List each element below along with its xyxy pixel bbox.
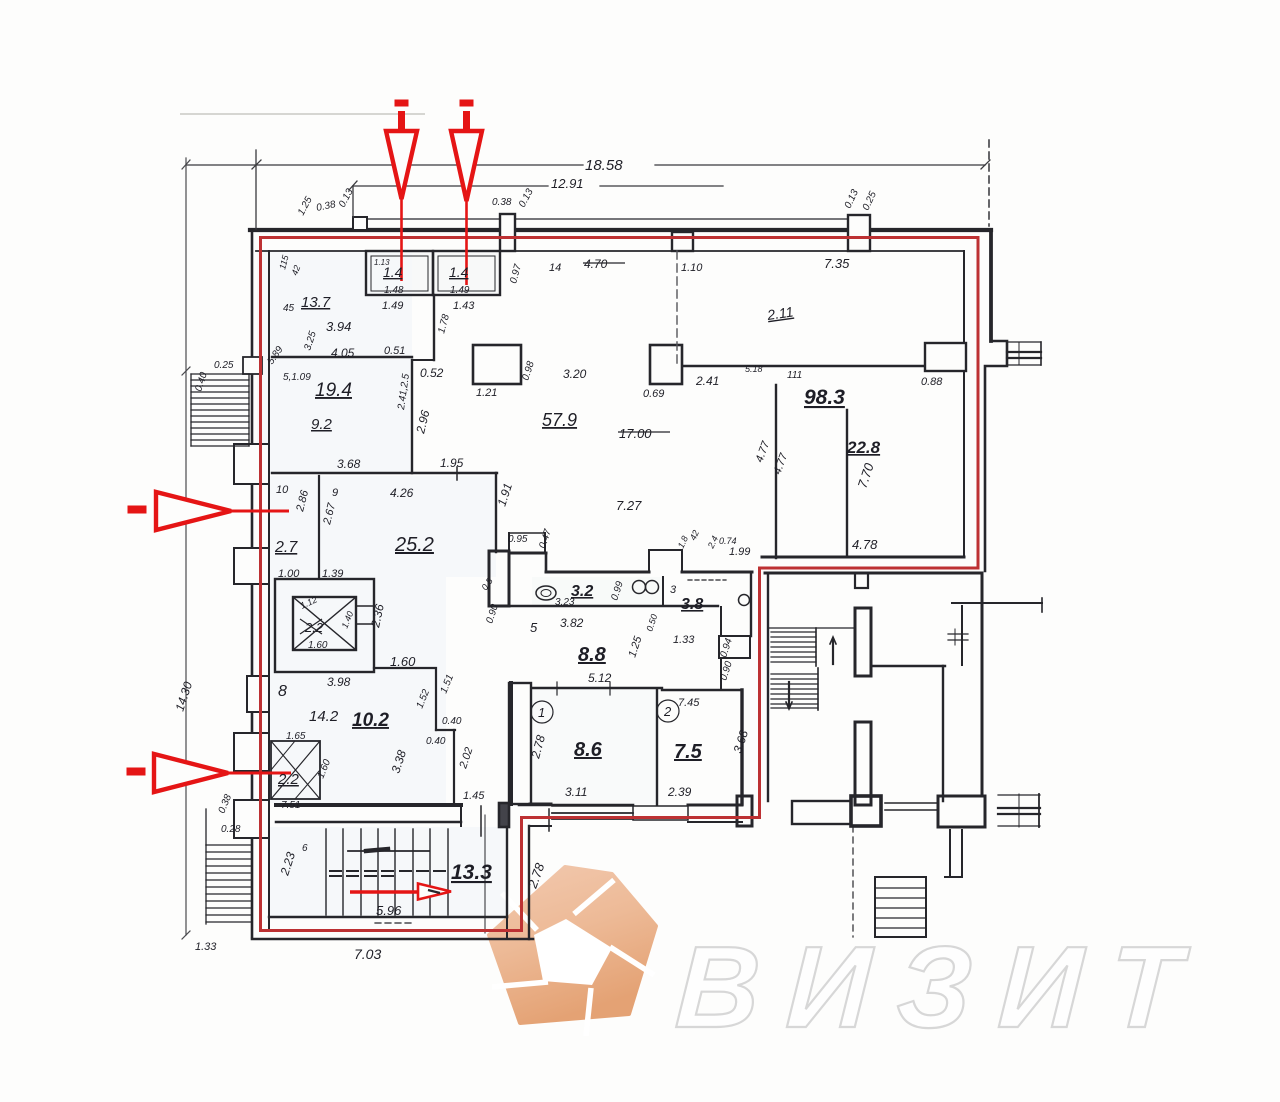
- svg-text:1.39: 1.39: [322, 568, 343, 580]
- svg-text:8.8: 8.8: [578, 644, 607, 666]
- svg-text:14.2: 14.2: [309, 708, 339, 725]
- svg-text:1.95: 1.95: [440, 456, 464, 470]
- svg-text:22.8: 22.8: [846, 438, 881, 457]
- svg-text:0.40: 0.40: [426, 736, 446, 747]
- svg-text:3.11: 3.11: [565, 785, 587, 799]
- svg-text:0.40: 0.40: [442, 716, 462, 727]
- svg-text:2.2: 2.2: [277, 771, 300, 788]
- svg-text:ВИЗИТ: ВИЗИТ: [673, 922, 1211, 1052]
- svg-text:1.10: 1.10: [681, 262, 703, 274]
- svg-text:1.49: 1.49: [450, 285, 470, 296]
- svg-text:2: 2: [663, 704, 672, 719]
- svg-text:1.60: 1.60: [308, 640, 328, 651]
- svg-text:3.82: 3.82: [560, 616, 584, 630]
- svg-text:0.95: 0.95: [508, 534, 528, 545]
- svg-text:1.65: 1.65: [286, 731, 306, 742]
- svg-text:10: 10: [276, 484, 289, 496]
- svg-text:1.48: 1.48: [384, 285, 404, 296]
- svg-text:1.45: 1.45: [463, 790, 485, 802]
- svg-text:5.18: 5.18: [745, 364, 763, 374]
- svg-text:0.74: 0.74: [719, 536, 737, 546]
- svg-text:5.12: 5.12: [588, 671, 612, 685]
- svg-text:2.7: 2.7: [274, 539, 298, 556]
- svg-text:18.58: 18.58: [585, 157, 623, 174]
- svg-text:1.21: 1.21: [476, 387, 497, 399]
- svg-text:7.45: 7.45: [678, 697, 700, 709]
- svg-text:5,1.09: 5,1.09: [283, 372, 311, 383]
- svg-text:4.78: 4.78: [852, 537, 878, 552]
- svg-text:8.6: 8.6: [574, 739, 603, 761]
- svg-text:25.2: 25.2: [394, 534, 434, 556]
- svg-text:9: 9: [332, 487, 338, 499]
- svg-text:0.25: 0.25: [214, 360, 234, 371]
- svg-text:1: 1: [538, 705, 545, 720]
- svg-text:1.99: 1.99: [729, 546, 750, 558]
- svg-text:0.38: 0.38: [492, 197, 512, 208]
- svg-text:5.96: 5.96: [376, 903, 402, 918]
- svg-text:7.35: 7.35: [824, 256, 850, 271]
- svg-text:0.52: 0.52: [420, 366, 444, 380]
- svg-text:8: 8: [278, 683, 287, 700]
- svg-text:3.20: 3.20: [563, 367, 587, 381]
- svg-text:1.49: 1.49: [382, 300, 403, 312]
- svg-text:17.00: 17.00: [619, 426, 652, 441]
- svg-text:0.28: 0.28: [221, 824, 241, 835]
- svg-text:1.33: 1.33: [673, 634, 695, 646]
- svg-text:45: 45: [283, 303, 295, 314]
- svg-text:7.03: 7.03: [354, 946, 381, 962]
- svg-text:3.8: 3.8: [681, 596, 703, 613]
- svg-text:13.3: 13.3: [451, 861, 492, 884]
- svg-text:0.51: 0.51: [384, 345, 405, 357]
- svg-text:3.23: 3.23: [555, 597, 575, 608]
- svg-text:3.98: 3.98: [327, 675, 351, 689]
- svg-text:4.26: 4.26: [390, 486, 414, 500]
- svg-text:2.41: 2.41: [695, 374, 719, 388]
- svg-text:14: 14: [549, 262, 561, 274]
- svg-text:19.4: 19.4: [315, 380, 352, 401]
- svg-text:1.13: 1.13: [374, 258, 390, 267]
- svg-text:1.00: 1.00: [278, 568, 300, 580]
- svg-text:1.33: 1.33: [195, 941, 217, 953]
- svg-text:1.60: 1.60: [390, 654, 416, 669]
- svg-text:0.69: 0.69: [643, 388, 664, 400]
- svg-text:5: 5: [530, 620, 538, 635]
- svg-text:98.3: 98.3: [804, 386, 845, 409]
- svg-text:1.43: 1.43: [453, 300, 475, 312]
- svg-text:0.88: 0.88: [921, 376, 943, 388]
- svg-text:10.2: 10.2: [352, 710, 389, 731]
- svg-text:13.7: 13.7: [301, 294, 331, 311]
- svg-text:3.68: 3.68: [337, 457, 361, 471]
- svg-text:111: 111: [787, 370, 802, 381]
- svg-text:12.91: 12.91: [551, 176, 584, 191]
- svg-text:3: 3: [670, 584, 677, 596]
- svg-text:3.94: 3.94: [326, 319, 351, 334]
- svg-text:4.70: 4.70: [584, 257, 608, 271]
- svg-text:2.39: 2.39: [667, 785, 692, 799]
- svg-text:7.27: 7.27: [616, 498, 642, 513]
- svg-text:4.05: 4.05: [331, 346, 355, 360]
- svg-text:1.4: 1.4: [449, 264, 469, 280]
- svg-text:57.9: 57.9: [542, 410, 577, 430]
- svg-text:6: 6: [302, 843, 308, 854]
- svg-text:7.5: 7.5: [674, 741, 703, 763]
- svg-text:7.51: 7.51: [281, 800, 300, 811]
- svg-text:9.2: 9.2: [311, 416, 333, 433]
